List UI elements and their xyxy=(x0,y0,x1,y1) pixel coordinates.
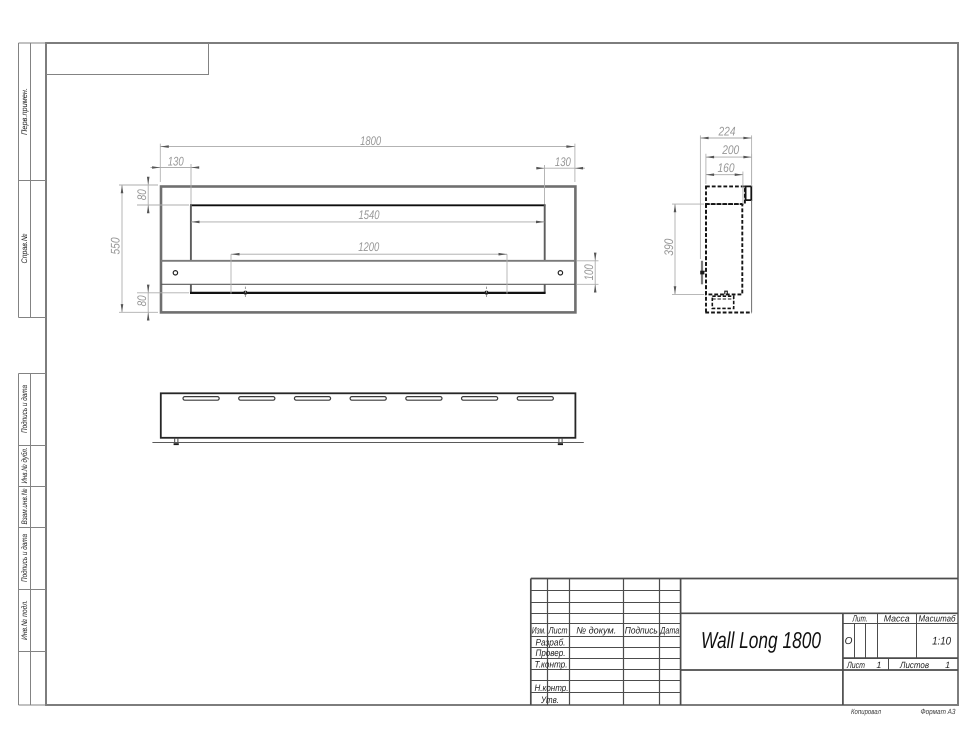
svg-text:100: 100 xyxy=(582,264,596,280)
svg-text:80: 80 xyxy=(135,189,149,200)
svg-text:1:10: 1:10 xyxy=(932,636,952,648)
svg-text:130: 130 xyxy=(555,155,571,169)
svg-text:1800: 1800 xyxy=(360,134,381,148)
svg-text:Wall Long 1800: Wall Long 1800 xyxy=(701,627,821,653)
svg-text:Разраб.: Разраб. xyxy=(536,638,566,649)
svg-text:Формат А3: Формат А3 xyxy=(921,707,957,716)
svg-text:550: 550 xyxy=(109,237,123,254)
svg-text:Лист: Лист xyxy=(548,626,568,637)
svg-text:130: 130 xyxy=(168,154,184,168)
svg-text:Инв.№ подл.: Инв.№ подл. xyxy=(20,600,29,640)
svg-text:390: 390 xyxy=(662,239,676,256)
svg-text:80: 80 xyxy=(135,295,149,306)
svg-text:№ докум.: № докум. xyxy=(576,626,616,637)
svg-text:Т.контр.: Т.контр. xyxy=(535,660,568,671)
svg-text:Дата: Дата xyxy=(660,626,680,637)
svg-text:224: 224 xyxy=(718,125,736,139)
svg-text:Справ.№: Справ.№ xyxy=(20,233,29,263)
svg-text:Провер.: Провер. xyxy=(536,648,566,659)
svg-text:Подпись и дата: Подпись и дата xyxy=(20,534,29,582)
svg-text:Копировал: Копировал xyxy=(851,707,882,716)
svg-text:Инв.№ дубл.: Инв.№ дубл. xyxy=(20,448,29,484)
svg-text:1540: 1540 xyxy=(359,208,380,222)
svg-text:Масса: Масса xyxy=(884,614,910,624)
svg-text:160: 160 xyxy=(718,161,735,175)
svg-text:Лит.: Лит. xyxy=(852,614,868,624)
svg-text:Изм.: Изм. xyxy=(532,626,546,637)
svg-text:Подпись и дата: Подпись и дата xyxy=(20,385,29,433)
svg-text:1: 1 xyxy=(876,660,881,670)
svg-text:Утв.: Утв. xyxy=(540,695,559,706)
svg-text:Перв.примен.: Перв.примен. xyxy=(20,88,29,135)
svg-text:О: О xyxy=(845,636,853,647)
svg-text:Подпись: Подпись xyxy=(625,626,658,637)
svg-text:Лист: Лист xyxy=(846,660,865,670)
svg-text:Масштаб: Масштаб xyxy=(919,614,957,624)
svg-text:1200: 1200 xyxy=(358,240,379,254)
svg-text:1: 1 xyxy=(945,660,950,670)
svg-text:Листов: Листов xyxy=(899,660,929,670)
svg-text:Взам.инв.№: Взам.инв.№ xyxy=(20,488,29,524)
svg-text:Н.контр.: Н.контр. xyxy=(535,683,569,694)
svg-text:200: 200 xyxy=(721,143,739,157)
